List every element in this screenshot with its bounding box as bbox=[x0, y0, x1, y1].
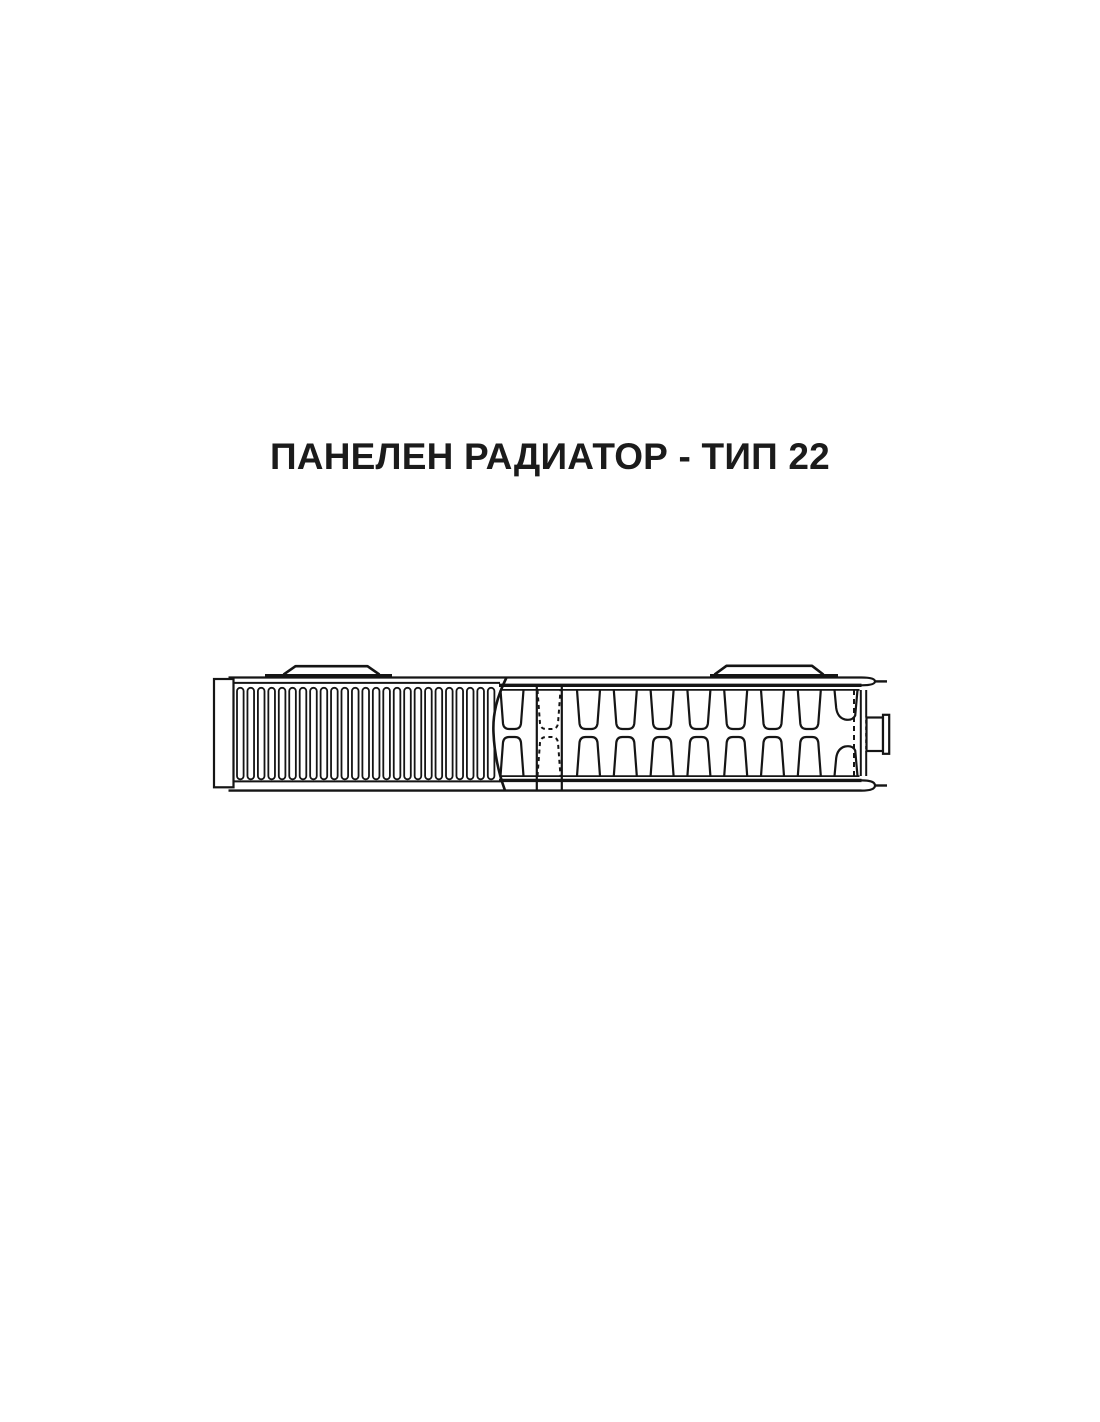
convector-fin bbox=[467, 688, 474, 780]
convector-fin bbox=[383, 688, 390, 780]
convector-fin bbox=[279, 688, 286, 780]
radiator-diagram bbox=[190, 650, 910, 805]
convector-fin bbox=[446, 688, 453, 780]
convector-fin bbox=[425, 688, 432, 780]
convector-fin bbox=[258, 688, 265, 780]
convector-fin bbox=[300, 688, 307, 780]
convector-fin bbox=[415, 688, 422, 780]
convector-fin bbox=[310, 688, 317, 780]
connection-boss-flange bbox=[883, 715, 889, 754]
convector-fin bbox=[436, 688, 443, 780]
section-body-fill bbox=[493, 678, 871, 791]
convector-fin bbox=[289, 688, 296, 780]
document-page: { "page": { "background": "#ffffff" }, "… bbox=[0, 0, 1100, 1422]
convector-fin bbox=[373, 688, 380, 780]
radiator-diagram-container bbox=[190, 650, 910, 805]
convector-fin bbox=[456, 688, 463, 780]
convector-fin bbox=[247, 688, 254, 780]
convector-fin bbox=[404, 688, 411, 780]
connection-boss bbox=[867, 718, 884, 752]
convector-fin bbox=[352, 688, 359, 780]
convector-fin bbox=[237, 688, 244, 780]
convector-fin bbox=[321, 688, 328, 780]
convector-fin bbox=[362, 688, 369, 780]
convector-fin bbox=[477, 688, 484, 780]
convector-fin bbox=[342, 688, 349, 780]
page-title: ПАНЕЛЕН РАДИАТОР - ТИП 22 bbox=[0, 436, 1100, 478]
left-end-cap bbox=[214, 679, 234, 787]
mounting-bracket-right bbox=[715, 666, 824, 675]
convector-fin bbox=[331, 688, 338, 780]
mounting-bracket-left bbox=[284, 666, 380, 674]
convector-fin bbox=[268, 688, 275, 780]
convector-fin bbox=[394, 688, 401, 780]
